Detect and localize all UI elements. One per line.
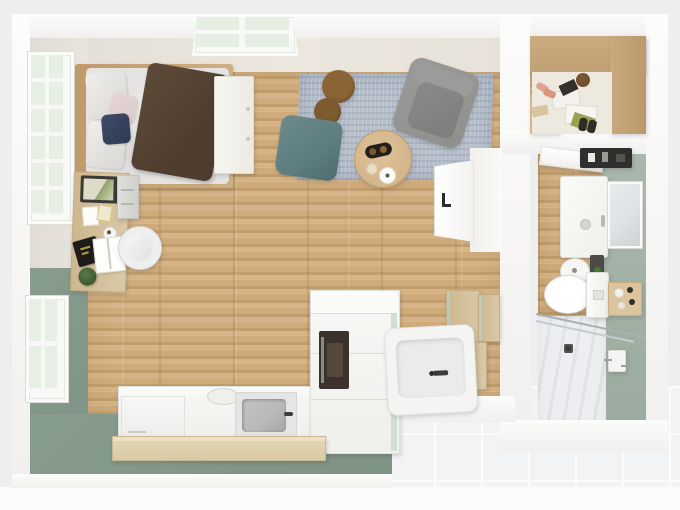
notebook-spine xyxy=(106,238,111,269)
unit-handle xyxy=(601,215,605,227)
kitchen-sink[interactable] xyxy=(235,392,297,439)
toiletry-tray[interactable] xyxy=(608,282,642,316)
wall-divider-vertical xyxy=(500,14,530,420)
wall-cabinet[interactable] xyxy=(478,294,500,342)
floorplan-canvas xyxy=(0,0,680,510)
coffee-table[interactable] xyxy=(354,130,412,188)
chair-seat xyxy=(125,233,153,261)
kitchen-counter[interactable] xyxy=(118,386,316,442)
breakfast-bar[interactable] xyxy=(112,436,326,461)
toilet-paper-holder[interactable] xyxy=(608,350,626,372)
basin-drain-knob xyxy=(580,219,591,230)
bathtub-basin xyxy=(395,337,466,398)
serving-tray xyxy=(364,141,393,159)
bathtub-faucet xyxy=(433,370,448,376)
closet-clothes-area xyxy=(532,72,612,134)
holder-arm xyxy=(621,365,630,367)
shower-vanity-unit[interactable] xyxy=(560,176,608,258)
interior-door-frame xyxy=(470,148,502,252)
black-shoe xyxy=(587,119,598,134)
wardrobe-handle xyxy=(246,107,250,111)
shelf-item xyxy=(588,153,595,162)
floor-drain xyxy=(564,344,573,353)
navy-accent-pillow xyxy=(101,113,132,145)
book-gilding xyxy=(82,251,89,255)
shelf-item xyxy=(602,152,608,162)
oven-window xyxy=(327,343,343,377)
bathroom-mirror[interactable] xyxy=(608,182,642,248)
bottle xyxy=(629,299,635,305)
file-cabinet[interactable] xyxy=(117,175,139,219)
monitor-screen xyxy=(83,178,114,200)
plate xyxy=(379,167,396,184)
pink-shoes xyxy=(542,88,557,100)
coffee xyxy=(107,230,111,234)
oven-handle xyxy=(321,337,324,383)
desk-chair[interactable] xyxy=(118,226,162,270)
wardrobe[interactable] xyxy=(214,76,254,174)
wall-right xyxy=(646,14,668,452)
window-glass xyxy=(195,17,289,47)
canvas-bottom-margin xyxy=(0,487,680,510)
flush-button xyxy=(593,290,604,300)
tall-french-window[interactable] xyxy=(28,52,74,224)
interior-door[interactable] xyxy=(434,160,474,242)
top-wall-window[interactable] xyxy=(192,14,298,56)
toilet-tank xyxy=(586,272,609,318)
holder-arm xyxy=(604,359,612,361)
dishwasher[interactable] xyxy=(121,396,185,441)
toilet-bowl xyxy=(544,275,592,314)
appliance-handle xyxy=(128,431,146,433)
book-gilding xyxy=(80,246,90,251)
built-in-oven[interactable] xyxy=(319,331,349,389)
cabinet-glass-edge xyxy=(479,295,482,341)
wall-bottom-left xyxy=(12,474,392,488)
closet-wardrobe-right[interactable] xyxy=(610,36,646,134)
window-glass xyxy=(29,299,59,393)
toilet[interactable] xyxy=(544,272,608,316)
beige-garment xyxy=(531,105,548,118)
bathtub[interactable] xyxy=(384,324,478,417)
drawer-line xyxy=(121,189,134,191)
brown-hat xyxy=(576,73,590,87)
photo-card-yellow xyxy=(96,204,113,222)
cup xyxy=(368,148,376,156)
teal-pouf[interactable] xyxy=(274,114,344,182)
bottle xyxy=(614,288,624,298)
sink-basin xyxy=(242,399,286,432)
window-glass xyxy=(31,55,65,215)
monitor xyxy=(80,175,121,203)
cabinet-seam xyxy=(311,399,397,400)
wardrobe-handle xyxy=(246,137,250,141)
drawer-line xyxy=(121,203,134,205)
bottle xyxy=(617,301,626,310)
bar-edge-highlight xyxy=(113,437,325,441)
door-handle xyxy=(442,204,451,207)
wall-bathroom-bottom xyxy=(500,420,668,452)
shelf-item xyxy=(616,154,625,162)
small-bowl xyxy=(366,163,378,175)
cabinet-counter-top xyxy=(311,291,397,314)
wall-top xyxy=(12,14,668,38)
sink-faucet xyxy=(284,412,293,416)
cup xyxy=(379,145,387,153)
lower-left-window[interactable] xyxy=(26,296,68,402)
double-bed[interactable] xyxy=(75,64,233,188)
black-wall-shelf[interactable] xyxy=(580,148,632,168)
desk-plant xyxy=(78,267,97,286)
bottle xyxy=(627,287,633,293)
